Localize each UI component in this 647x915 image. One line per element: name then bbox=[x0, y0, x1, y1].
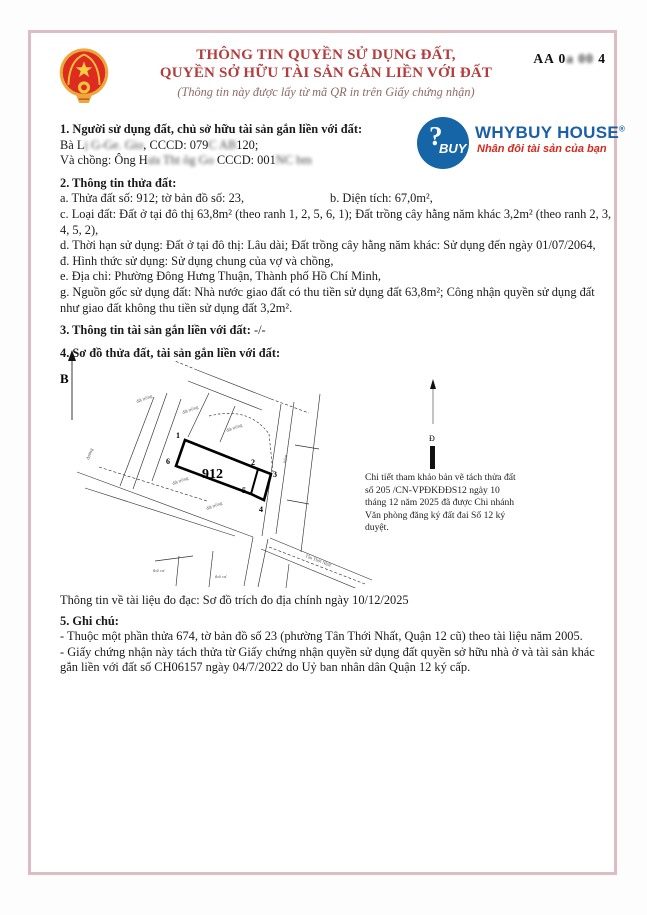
parcel-912-outline bbox=[176, 440, 271, 500]
land-use-form-line: đ. Hình thức sử dụng: Sử dụng chung của … bbox=[60, 254, 614, 270]
title-subtitle: (Thông tin này được lấy từ mã QR in trên… bbox=[141, 85, 511, 100]
svg-text:thổ cư: thổ cư bbox=[215, 574, 227, 579]
parcel-area-line: b. Diện tích: 67,0m², bbox=[330, 191, 433, 207]
section3-line: 3. Thông tin tài sản gắn liền với đất: -… bbox=[60, 323, 614, 339]
parcel-row-ab: a. Thửa đất số: 912; tờ bản đồ số: 23, b… bbox=[60, 191, 614, 207]
address-line: e. Địa chỉ: Phường Đông Hưng Thuận, Thàn… bbox=[60, 269, 614, 285]
svg-text:1: 1 bbox=[176, 431, 180, 440]
svg-text:4: 4 bbox=[259, 505, 263, 514]
owner-line-1: Bà Lị G-Ge. Gio, CCCD: 079C AB120; bbox=[60, 138, 614, 154]
map-reference-note: Chi tiết tham khảo bản vẽ tách thửa đất … bbox=[365, 472, 523, 535]
section1-heading: 1. Người sử dụng đất, chủ sở hữu tài sản… bbox=[60, 122, 614, 138]
svg-text:5: 5 bbox=[242, 486, 246, 495]
note-item-2: - Giấy chứng nhận này tách thửa từ Giấy … bbox=[60, 645, 614, 676]
svg-text:đường: đường bbox=[85, 447, 94, 460]
svg-text:đất trống: đất trống bbox=[226, 422, 244, 433]
svg-text:đất trống: đất trống bbox=[182, 404, 200, 415]
parcel-number-line: a. Thửa đất số: 912; tờ bản đồ số: 23, bbox=[60, 191, 330, 207]
owner-line-2: Và chồng: Ông Hưa Tht ôg Go CCCD: 001NC … bbox=[60, 153, 614, 169]
cadastral-map: B bbox=[57, 350, 622, 590]
svg-text:đất trống: đất trống bbox=[172, 475, 190, 486]
section3-heading: 3. Thông tin tài sản gắn liền với đất: bbox=[60, 323, 251, 337]
vietnam-emblem-icon bbox=[58, 46, 110, 108]
svg-text:thổ cư: thổ cư bbox=[153, 568, 165, 573]
document-body: 1. Người sử dụng đất, chủ sở hữu tài sản… bbox=[60, 122, 614, 361]
vietnam-emblem-graphic bbox=[58, 46, 110, 108]
svg-text:6: 6 bbox=[166, 457, 170, 466]
document-footer: Thông tin về tài liệu đo đạc: Sơ đồ tríc… bbox=[60, 593, 614, 676]
svg-text:đất trống: đất trống bbox=[206, 500, 224, 511]
section3-value: -/- bbox=[254, 323, 266, 337]
certificate-page: { "colors": { "frame_pink": "#debcc3", "… bbox=[0, 0, 647, 915]
svg-text:Tân Thới Nhất: Tân Thới Nhất bbox=[305, 553, 333, 568]
svg-text:Đ: Đ bbox=[429, 434, 435, 443]
measurement-line: Thông tin về tài liệu đo đạc: Sơ đồ tríc… bbox=[60, 593, 614, 609]
section2-heading: 2. Thông tin thửa đất: bbox=[60, 176, 614, 192]
svg-text:đất trống: đất trống bbox=[136, 393, 154, 404]
cadastral-map-drawing: B bbox=[57, 350, 622, 588]
svg-text:B: B bbox=[60, 371, 69, 386]
land-origin-line: g. Nguồn gốc sử dụng đất: Nhà nước giao … bbox=[60, 285, 614, 316]
north-arrow-icon: B bbox=[60, 350, 76, 420]
svg-text:2: 2 bbox=[251, 458, 255, 467]
document-title-block: THÔNG TIN QUYỀN SỬ DỤNG ĐẤT, QUYỀN SỞ HỮ… bbox=[141, 46, 511, 100]
land-type-line: c. Loại đất: Đất ở tại đô thị 63,8m² (th… bbox=[60, 207, 614, 238]
svg-text:3: 3 bbox=[273, 470, 277, 479]
neighbor-boundary-lines bbox=[77, 361, 372, 588]
certificate-frame: THÔNG TIN QUYỀN SỬ DỤNG ĐẤT, QUYỀN SỞ HỮ… bbox=[28, 30, 617, 875]
section5-heading: 5. Ghi chú: bbox=[60, 614, 614, 630]
parcel-number-label: 912 bbox=[202, 467, 223, 482]
detail-north-arrow-icon: Đ bbox=[429, 379, 436, 469]
svg-text:hẻm: hẻm bbox=[282, 454, 288, 463]
registered-mark: ® bbox=[619, 124, 625, 133]
title-line-2: QUYỀN SỞ HỮU TÀI SẢN GẮN LIỀN VỚI ĐẤT bbox=[141, 64, 511, 82]
note-item-1: - Thuộc một phần thửa 674, tờ bản đồ số … bbox=[60, 629, 614, 645]
land-term-line: d. Thời hạn sử dụng: Đất ở tại đô thị: L… bbox=[60, 238, 614, 254]
title-line-1: THÔNG TIN QUYỀN SỬ DỤNG ĐẤT, bbox=[141, 46, 511, 64]
serial-number: AA 0a 00 4 bbox=[533, 51, 606, 67]
